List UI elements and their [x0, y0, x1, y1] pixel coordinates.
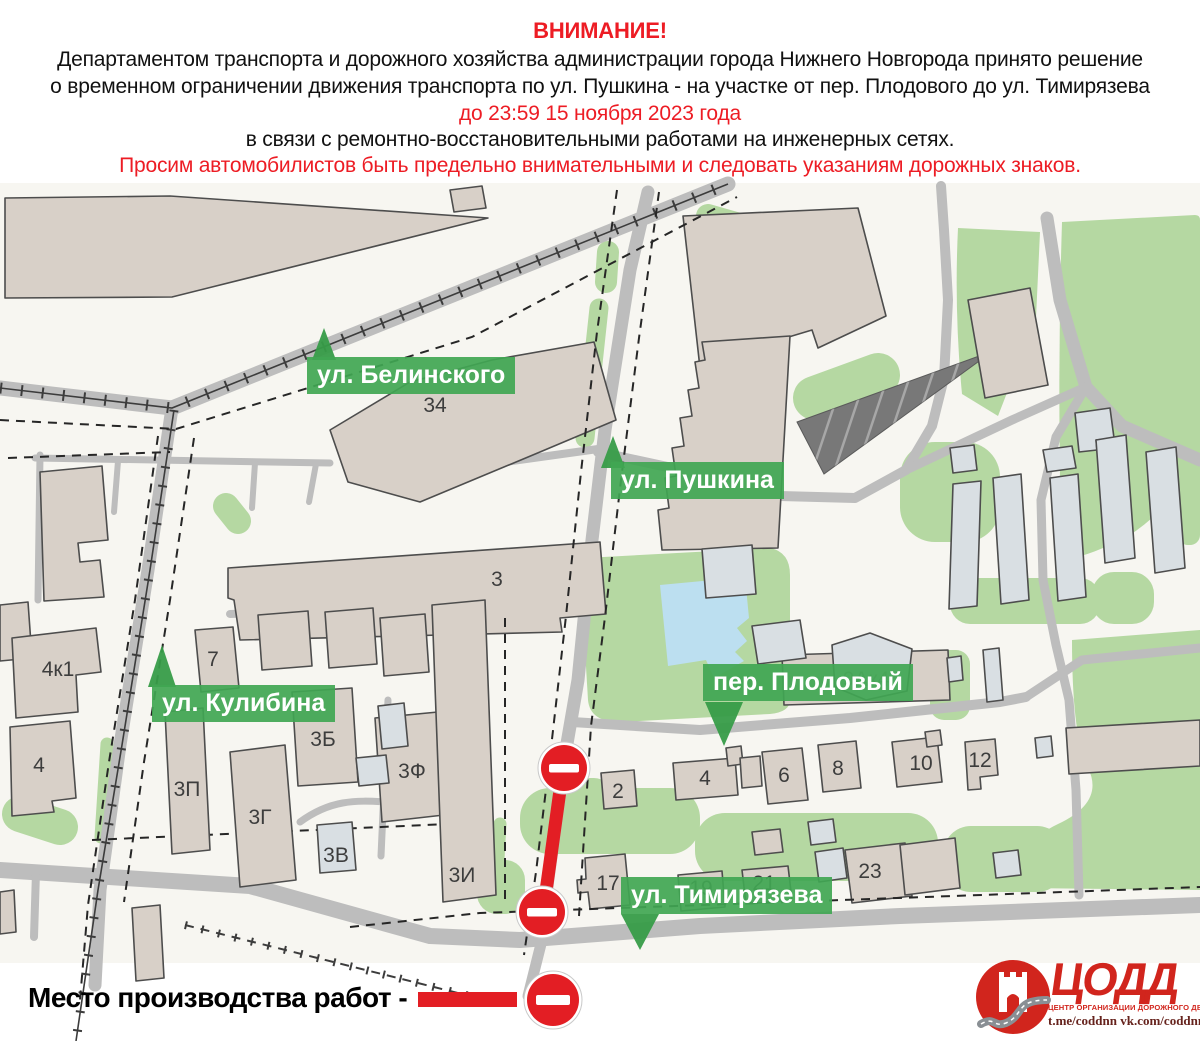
header-line-5: Просим автомобилистов быть предельно вни… — [0, 154, 1200, 178]
svg-text:17: 17 — [596, 872, 619, 895]
no-entry-sign-icon — [516, 886, 568, 938]
street-label-belinskogo: ул. Белинского — [307, 357, 515, 394]
svg-text:3Б: 3Б — [310, 728, 335, 751]
street-pin-icon — [148, 645, 176, 687]
svg-text:2: 2 — [612, 780, 624, 803]
svg-text:3П: 3П — [174, 778, 201, 801]
legend-graphics — [418, 971, 582, 1029]
svg-text:4к1: 4к1 — [42, 658, 75, 681]
svg-text:3И: 3И — [449, 864, 476, 887]
svg-text:3В: 3В — [323, 844, 349, 867]
logo-links: t.me/coddnn vk.com/coddnn52 — [1048, 1013, 1200, 1029]
svg-text:12: 12 — [968, 749, 991, 772]
legend-label: Место производства работ - — [28, 982, 407, 1014]
street-label-timiryazeva: ул. Тимирязева — [621, 877, 832, 914]
codd-logo-icon — [976, 960, 1050, 1034]
svg-text:7: 7 — [207, 648, 219, 671]
street-pin-icon — [621, 914, 659, 950]
street-pin-icon — [705, 702, 743, 746]
codd-logo: ЦОДД ЦЕНТР ОРГАНИЗАЦИИ ДОРОЖНОГО ДВИЖЕНИ… — [1048, 958, 1200, 1029]
header-line-4: в связи с ремонтно-восстановительными ра… — [0, 128, 1200, 152]
street-pin-icon — [312, 328, 336, 360]
svg-text:6: 6 — [778, 764, 790, 787]
street-label-plodovyy: пер. Плодовый — [703, 664, 913, 701]
svg-text:23: 23 — [858, 860, 881, 883]
logo-name: ЦОДД — [1048, 958, 1200, 1002]
closure-line-sample — [418, 992, 517, 1007]
svg-text:8: 8 — [832, 757, 844, 780]
street-label-pushkina: ул. Пушкина — [611, 462, 784, 499]
svg-text:10: 10 — [909, 752, 932, 775]
svg-text:3: 3 — [491, 568, 503, 591]
no-entry-sign-icon — [538, 742, 590, 794]
header-line-2: о временном ограничении движения транспо… — [0, 75, 1200, 99]
svg-text:3Г: 3Г — [248, 806, 271, 829]
header-line-1: Департаментом транспорта и дорожного хоз… — [0, 48, 1200, 72]
svg-text:34: 34 — [423, 394, 447, 417]
svg-text:4: 4 — [33, 754, 45, 777]
street-label-kulibina: ул. Кулибина — [152, 685, 335, 722]
header-line-3: до 23:59 15 ноября 2023 года — [0, 102, 1200, 126]
svg-text:4: 4 — [699, 767, 711, 790]
svg-text:3Ф: 3Ф — [398, 760, 426, 783]
header-title: ВНИМАНИЕ! — [0, 18, 1200, 44]
no-entry-sign-icon — [524, 971, 582, 1029]
